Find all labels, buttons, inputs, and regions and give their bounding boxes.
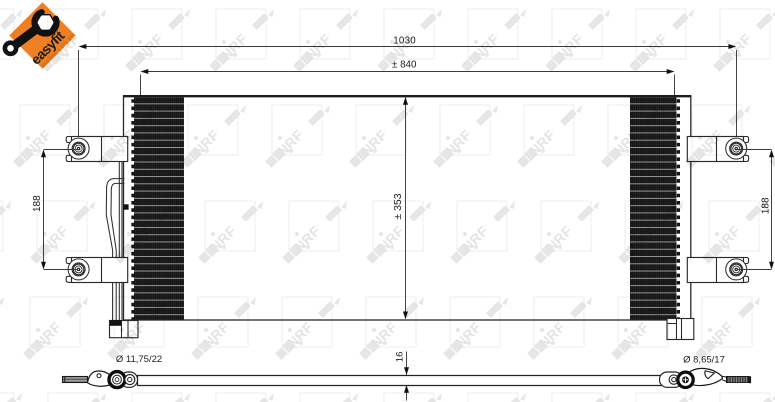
svg-text:16: 16 — [394, 352, 405, 363]
svg-text:Ø 11,75/22: Ø 11,75/22 — [116, 354, 162, 365]
svg-text:± 353: ± 353 — [392, 193, 404, 219]
